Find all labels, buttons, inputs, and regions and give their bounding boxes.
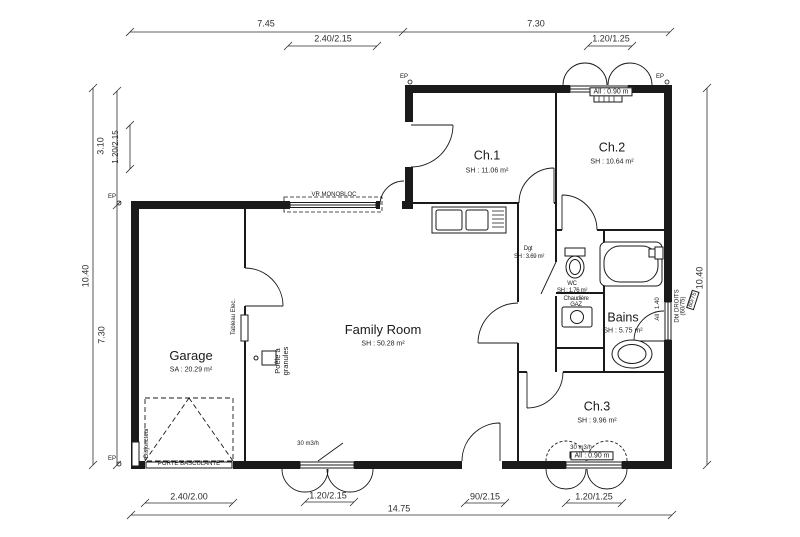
room-bains-area: SH : 5.75 m² — [603, 327, 642, 334]
dim-left-offset: 3.10 — [96, 137, 105, 155]
room-family-name: Family Room — [345, 323, 422, 337]
room-ch3-area: SH : 9.96 m² — [577, 417, 616, 424]
dim-right-total: 10.40 — [695, 267, 704, 290]
room-ch2-area: SH : 10.64 m² — [590, 158, 633, 165]
electrical-panel-label: Tableau Elec. — [231, 299, 237, 335]
dim-top-right-window: 1.20/1.25 — [592, 34, 630, 43]
garage-door-label: PORTE BASCULANTE — [158, 461, 220, 467]
ep-mark-garage-bottom: EP — [108, 456, 116, 462]
dim-left-wing: 7.30 — [97, 326, 106, 344]
room-dgt-area: SH : 3.69 m² — [514, 254, 544, 260]
right-window-note-line1: Dbl DROITS — [675, 289, 681, 322]
dim-bottom-total: 14.75 — [388, 504, 411, 513]
garage-door — [145, 398, 233, 468]
dim-left-total: 10.40 — [81, 265, 90, 288]
room-ch1-name: Ch.1 — [474, 149, 500, 162]
sill-height-140-label: All : 1.40 — [655, 297, 661, 320]
ep-mark-garage-top: EP — [108, 194, 116, 200]
dim-top-left-total: 7.45 — [257, 19, 275, 28]
ep-mark-top-left: EP — [400, 74, 408, 80]
sill-height-bottom-label: All : 0.90 m — [570, 451, 613, 460]
room-dgt-name: Dgt — [524, 246, 532, 252]
floorplan-drawing — [0, 0, 800, 537]
room-garage-area: SA : 20.29 m² — [170, 366, 212, 373]
roller-shutter-label: VR MONOBLOC — [311, 192, 356, 198]
dim-bottom-entry-door: 90/2.15 — [470, 492, 500, 501]
room-garage-name: Garage — [169, 349, 212, 363]
room-ch3-name: Ch.3 — [584, 400, 610, 413]
dim-bottom-family-window: 1.20/2.15 — [309, 491, 347, 500]
ep-mark-top-right: EP — [656, 74, 664, 80]
room-wc-name: WC — [567, 281, 576, 287]
boiler-label-line2: GAZ — [570, 302, 581, 308]
breaker-label: Disjoncteur — [144, 428, 150, 458]
room-family-area: SH : 50.28 m² — [361, 340, 404, 347]
dim-top-left-window: 2.40/2.15 — [314, 34, 352, 43]
dim-top-right-total: 7.30 — [527, 19, 545, 28]
pellet-stove-label-line2: granules — [281, 347, 290, 376]
room-wc-area: SH : 1.76 m² — [557, 288, 587, 294]
airflow-family-label: 30 m3/h — [297, 441, 319, 447]
airflow-ch3-label: 30 m3/h — [570, 445, 592, 451]
room-ch2-name: Ch.2 — [599, 141, 625, 154]
pellet-stove-label: Poêle à granules — [274, 347, 290, 376]
dim-bottom-garage-door: 2.40/2.00 — [170, 492, 208, 501]
floorplan-page: 7.45 2.40/2.15 7.30 1.20/1.25 3.10 1.20/… — [0, 0, 800, 537]
room-ch1-area: SH : 11.06 m² — [466, 167, 509, 174]
dim-bottom-ch3-window: 1.20/1.25 — [575, 492, 613, 501]
sill-height-top-label: All : 0.90 m — [589, 87, 632, 96]
dim-left-window: 1.20/2.15 — [112, 130, 120, 163]
room-bains-name: Bains — [607, 311, 638, 324]
